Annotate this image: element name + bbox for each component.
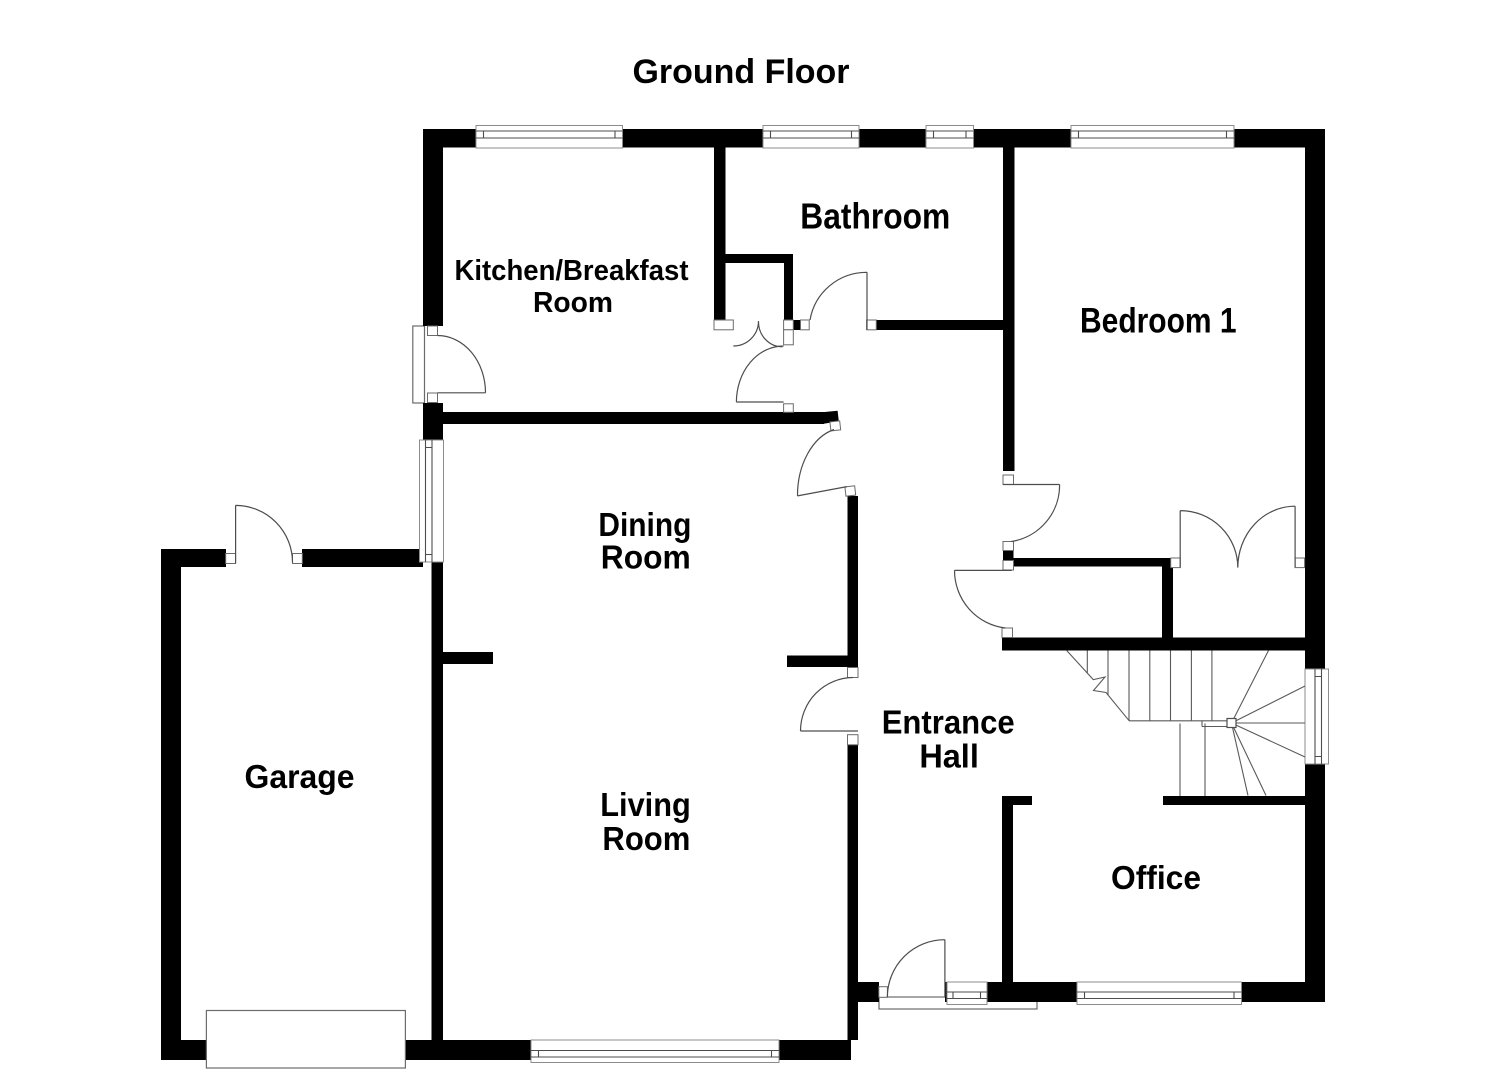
svg-text:Dining: Dining: [598, 506, 691, 543]
svg-text:Kitchen/Breakfast: Kitchen/Breakfast: [455, 255, 689, 287]
svg-text:Entrance: Entrance: [882, 703, 1015, 740]
svg-text:Room: Room: [601, 539, 691, 576]
svg-text:Hall: Hall: [919, 737, 979, 774]
svg-text:Garage: Garage: [245, 758, 355, 795]
svg-text:Ground Floor: Ground Floor: [633, 53, 850, 91]
svg-text:Office: Office: [1111, 859, 1201, 896]
svg-text:Living: Living: [600, 786, 691, 823]
svg-text:Bathroom: Bathroom: [800, 195, 950, 236]
svg-text:Bedroom 1: Bedroom 1: [1080, 300, 1237, 340]
svg-text:Room: Room: [602, 820, 690, 857]
svg-text:Room: Room: [533, 287, 613, 319]
